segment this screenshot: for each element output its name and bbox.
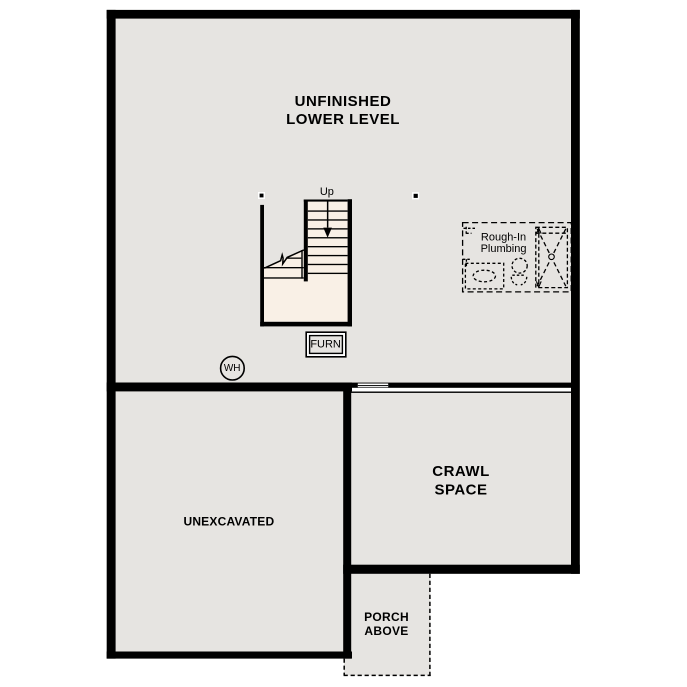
- svg-text:FURN: FURN: [310, 338, 341, 350]
- svg-text:Up: Up: [320, 186, 334, 198]
- svg-text:WH: WH: [224, 363, 241, 374]
- svg-text:UNEXCAVATED: UNEXCAVATED: [183, 515, 274, 529]
- svg-text:UNFINISHED: UNFINISHED: [295, 93, 392, 110]
- svg-text:ABOVE: ABOVE: [364, 624, 408, 638]
- svg-text:CRAWL: CRAWL: [432, 463, 490, 480]
- svg-text:LOWER LEVEL: LOWER LEVEL: [286, 111, 400, 128]
- svg-text:SPACE: SPACE: [434, 482, 487, 499]
- svg-text:Rough-In: Rough-In: [481, 232, 526, 244]
- svg-text:Plumbing: Plumbing: [481, 243, 527, 255]
- svg-text:PORCH: PORCH: [364, 610, 409, 624]
